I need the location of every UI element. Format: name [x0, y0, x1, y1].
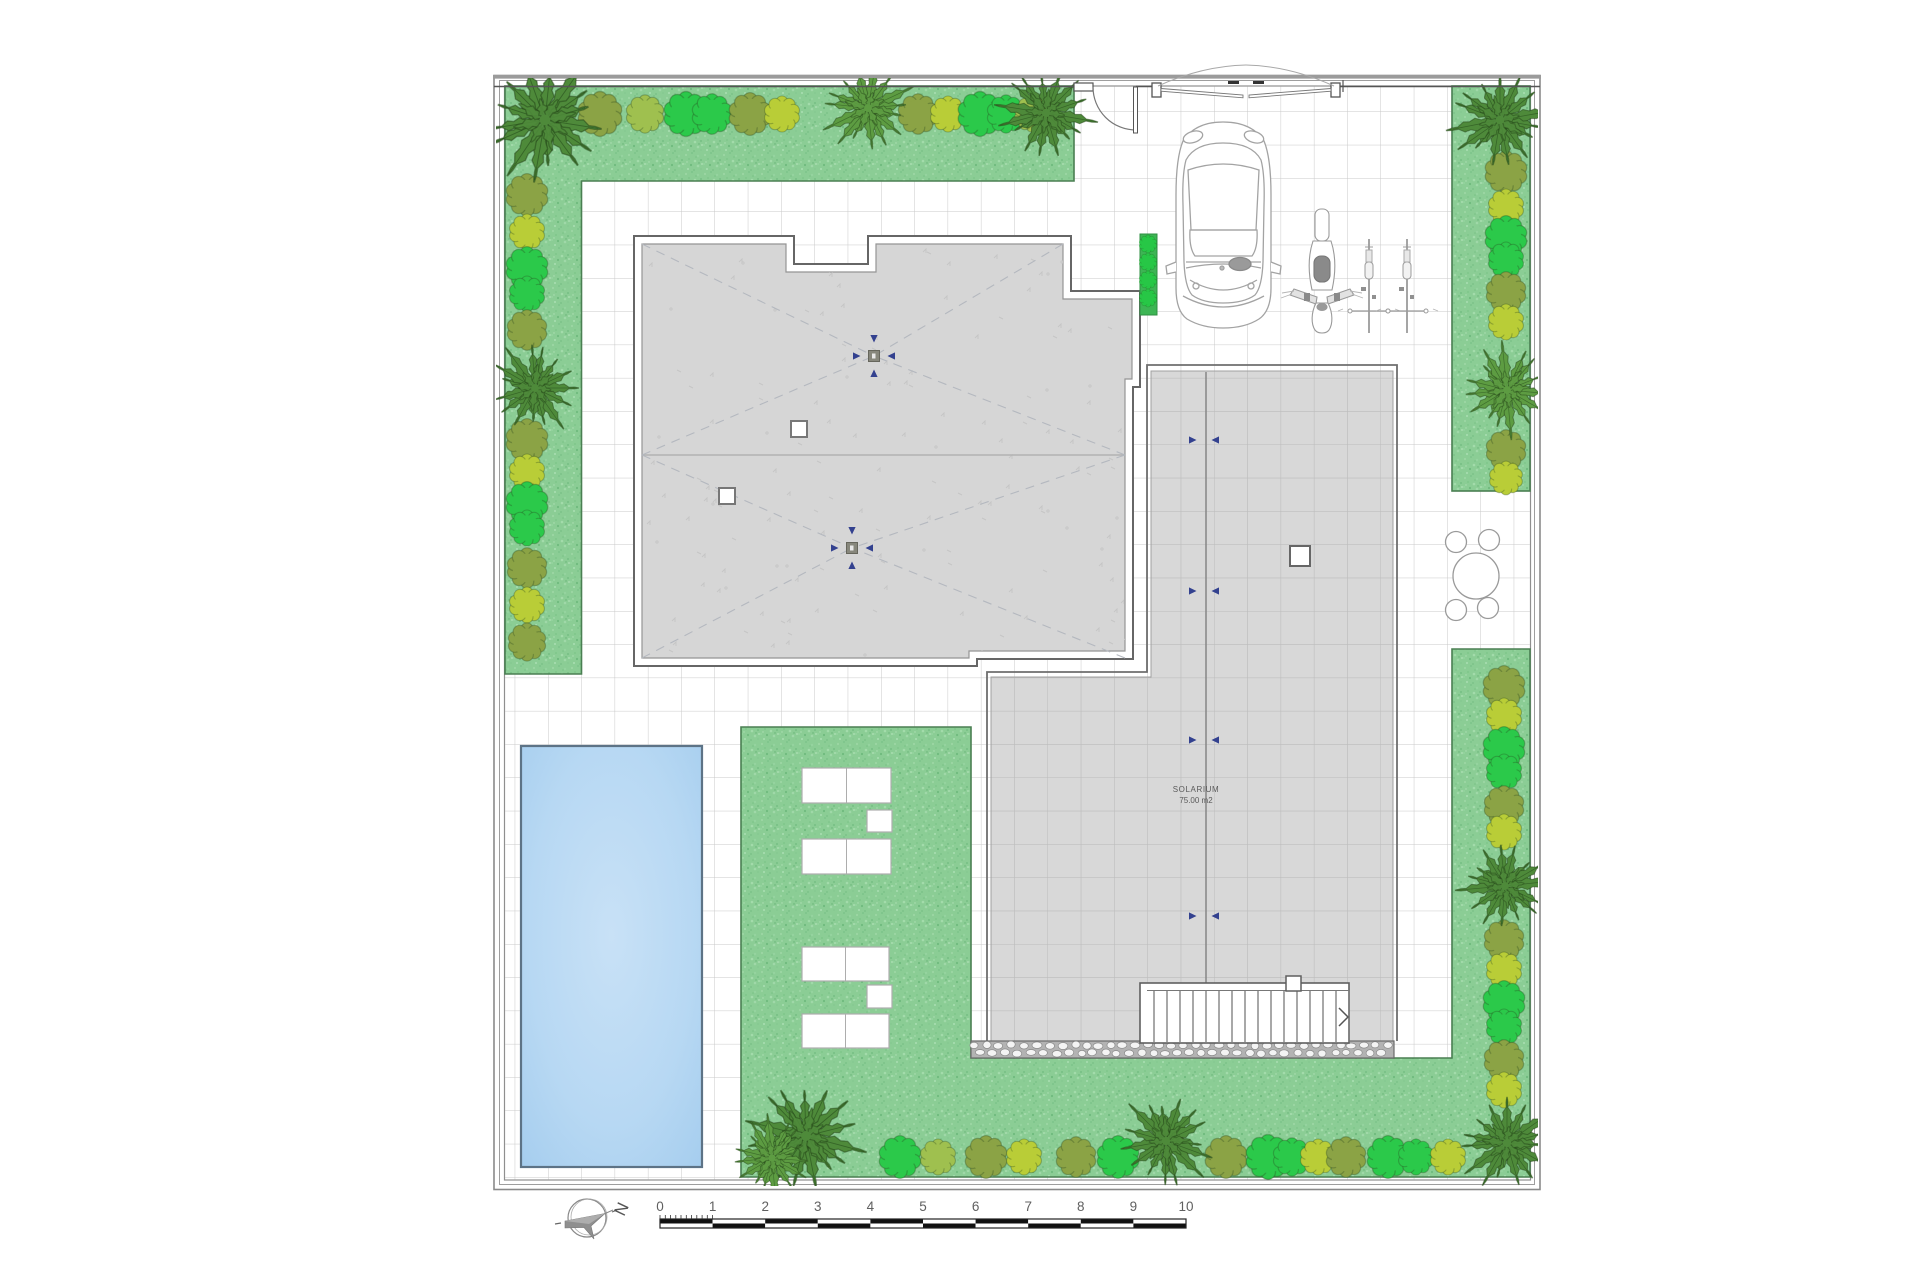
svg-text:3: 3 [814, 1199, 822, 1214]
svg-text:2: 2 [761, 1199, 769, 1214]
svg-text:7: 7 [1024, 1199, 1032, 1214]
svg-text:SOLARIUM: SOLARIUM [1173, 785, 1220, 794]
svg-text:1: 1 [709, 1199, 717, 1214]
svg-text:4: 4 [867, 1199, 875, 1214]
svg-text:8: 8 [1077, 1199, 1085, 1214]
svg-text:75.00 m2: 75.00 m2 [1179, 796, 1213, 805]
svg-text:5: 5 [919, 1199, 927, 1214]
svg-text:9: 9 [1130, 1199, 1138, 1214]
svg-text:6: 6 [972, 1199, 980, 1214]
svg-text:0: 0 [656, 1199, 664, 1214]
svg-text:10: 10 [1178, 1199, 1193, 1214]
